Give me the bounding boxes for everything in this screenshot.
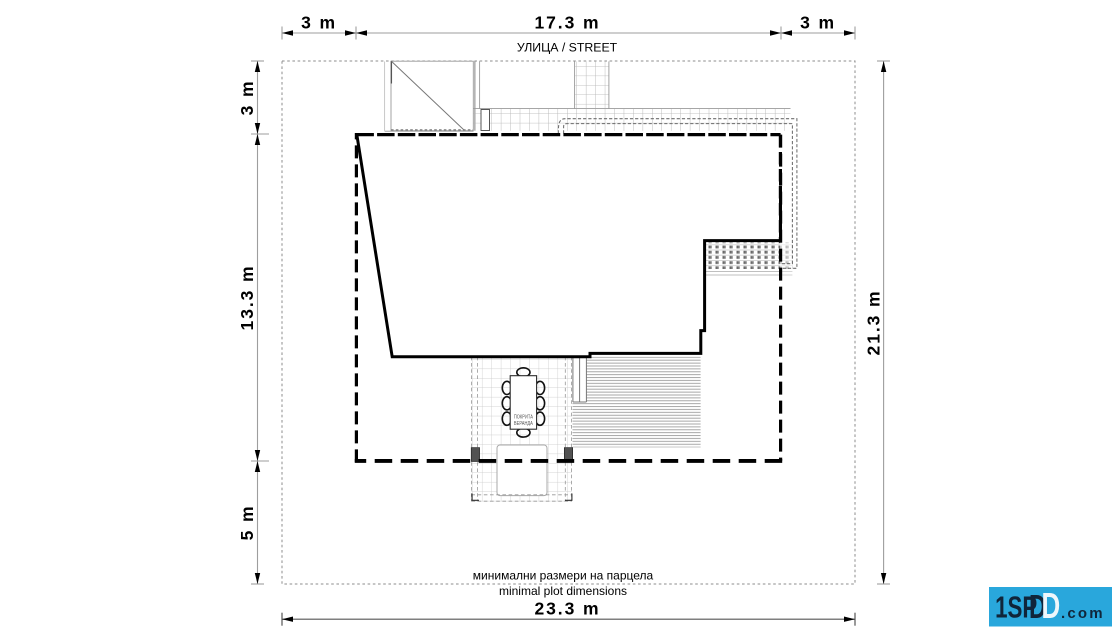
svg-text:УЛИЦА / STREET: УЛИЦА / STREET	[517, 41, 618, 55]
svg-text:5 m: 5 m	[237, 505, 257, 541]
svg-text:21.3 m: 21.3 m	[864, 290, 884, 356]
svg-text:23.3 m: 23.3 m	[535, 599, 601, 619]
svg-text:minimal plot dimensions: minimal plot dimensions	[499, 584, 627, 598]
svg-text:ВЕРАНДА: ВЕРАНДА	[514, 421, 534, 427]
svg-text:минимални размери на парцела: минимални размери на парцела	[473, 568, 654, 582]
svg-text:ПОКРИТА: ПОКРИТА	[514, 415, 534, 421]
svg-text:3 m: 3 m	[237, 80, 257, 116]
svg-text:.com: .com	[1061, 605, 1105, 622]
svg-text:13.3 m: 13.3 m	[237, 265, 257, 331]
svg-text:17.3 m: 17.3 m	[535, 13, 601, 33]
svg-text:D: D	[1041, 586, 1060, 626]
svg-text:3 m: 3 m	[800, 13, 836, 33]
svg-text:3 m: 3 m	[301, 13, 337, 33]
